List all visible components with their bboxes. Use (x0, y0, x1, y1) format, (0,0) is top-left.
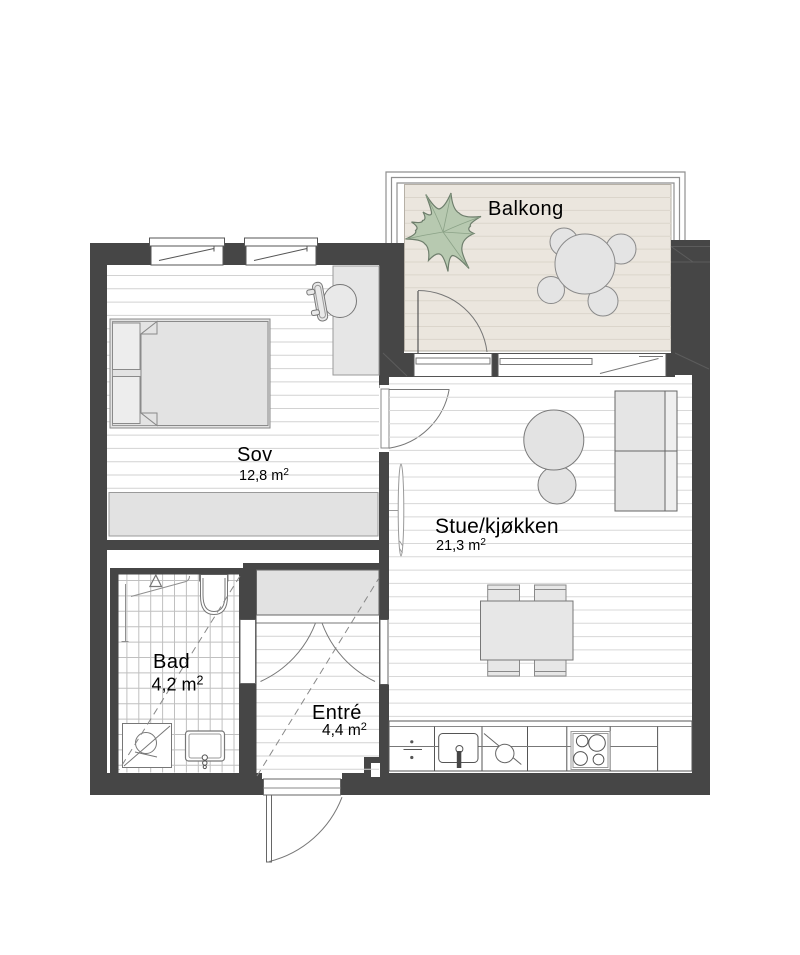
svg-text:12,8 m2: 12,8 m2 (239, 467, 289, 484)
svg-text:Stue/kjøkken: Stue/kjøkken (435, 515, 559, 538)
svg-text:4,2 m2: 4,2 m2 (152, 674, 204, 695)
svg-text:4,4 m2: 4,4 m2 (322, 721, 367, 739)
svg-text:Sov: Sov (237, 444, 272, 466)
svg-text:21,3 m2: 21,3 m2 (436, 537, 486, 554)
svg-text:Bad: Bad (153, 651, 190, 673)
svg-text:Entré: Entré (312, 702, 362, 724)
svg-text:Balkong: Balkong (488, 198, 564, 220)
